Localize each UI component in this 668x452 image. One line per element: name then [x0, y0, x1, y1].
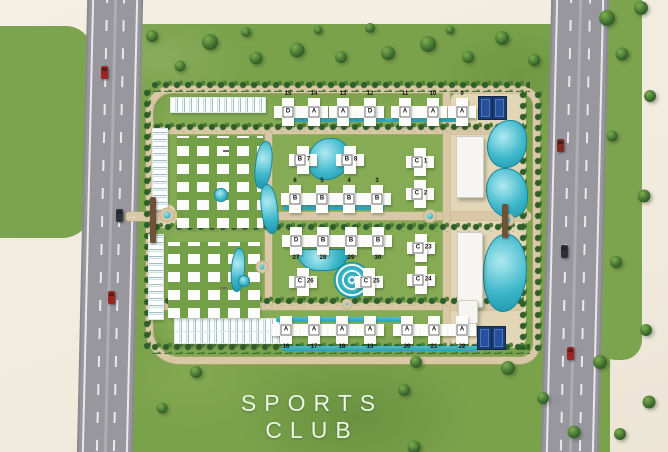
sports-club-caption: SPORTS CLUB — [200, 390, 424, 444]
caption-line-1: SPORTS — [200, 390, 424, 417]
left-road — [79, 0, 142, 452]
right-road — [543, 0, 608, 452]
grass-verge-left — [0, 26, 92, 238]
tree — [643, 396, 656, 409]
tree — [614, 428, 626, 440]
caption-line-2: CLUB — [200, 417, 424, 444]
tree — [644, 90, 656, 102]
compound-ring-road — [146, 86, 540, 364]
east-entrance-arrow-icon: ← — [515, 208, 525, 218]
master-plan-canvas: 15 D 14 A 13 A 12 D 11 A — [0, 0, 668, 452]
west-entrance-arrow-icon: → — [127, 212, 137, 222]
